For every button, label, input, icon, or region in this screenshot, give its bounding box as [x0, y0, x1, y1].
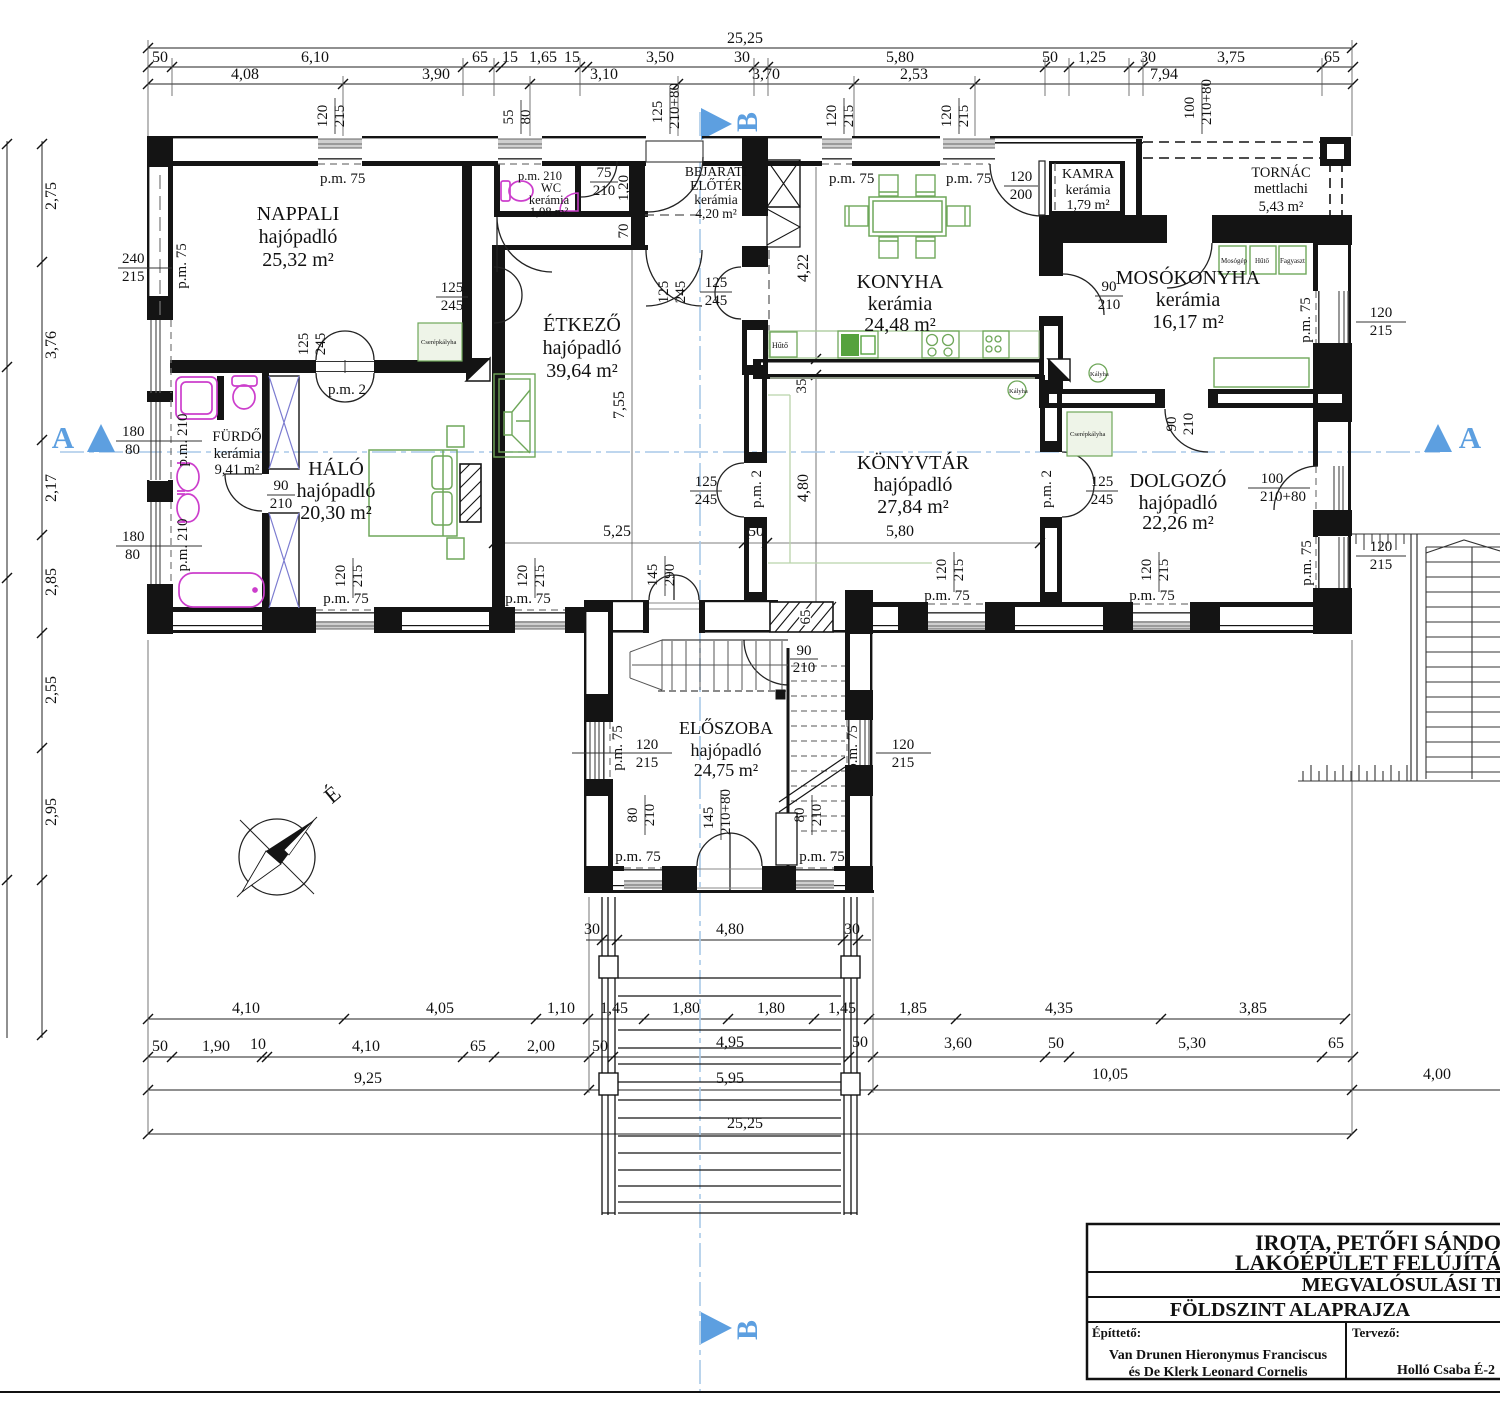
- svg-text:hajópadló: hajópadló: [259, 226, 338, 248]
- svg-text:5,95: 5,95: [716, 1070, 744, 1087]
- svg-text:1,10: 1,10: [547, 1000, 575, 1017]
- svg-text:p.m. 75: p.m. 75: [924, 588, 969, 604]
- svg-text:125: 125: [705, 275, 728, 291]
- svg-text:120: 120: [939, 105, 955, 128]
- svg-text:1,90: 1,90: [202, 1038, 230, 1055]
- svg-text:NAPPALI: NAPPALI: [257, 203, 340, 225]
- svg-text:125: 125: [1091, 474, 1114, 490]
- svg-text:120: 120: [824, 105, 840, 128]
- svg-text:1,20: 1,20: [616, 175, 632, 201]
- svg-text:215: 215: [122, 269, 145, 285]
- svg-text:Kályha: Kályha: [1009, 388, 1028, 395]
- svg-text:90: 90: [797, 643, 812, 659]
- svg-text:1,45: 1,45: [828, 1000, 856, 1017]
- svg-text:15: 15: [564, 49, 580, 66]
- svg-text:50: 50: [852, 1034, 868, 1051]
- svg-text:215: 215: [350, 565, 366, 588]
- svg-text:245: 245: [441, 298, 464, 314]
- svg-text:65: 65: [472, 49, 488, 66]
- svg-text:Hűtő: Hűtő: [772, 341, 788, 350]
- svg-text:70: 70: [616, 224, 632, 239]
- svg-text:2,00: 2,00: [527, 1038, 555, 1055]
- svg-text:ELŐTÉR: ELŐTÉR: [690, 178, 742, 193]
- svg-text:1,98 m²: 1,98 m²: [530, 205, 569, 219]
- svg-text:2,53: 2,53: [900, 66, 928, 83]
- svg-text:90: 90: [274, 478, 289, 494]
- svg-text:245: 245: [1091, 492, 1114, 508]
- svg-text:p.m. 2: p.m. 2: [328, 382, 366, 398]
- svg-text:2,85: 2,85: [43, 568, 60, 596]
- svg-text:210: 210: [1181, 413, 1197, 436]
- svg-text:3,50: 3,50: [646, 49, 674, 66]
- svg-text:Van Drunen Hieronymus Francisc: Van Drunen Hieronymus Franciscus: [1109, 1348, 1328, 1363]
- svg-text:210+80: 210+80: [1199, 79, 1215, 125]
- svg-text:1,85: 1,85: [899, 1000, 927, 1017]
- svg-text:180: 180: [122, 424, 145, 440]
- svg-text:120: 120: [515, 565, 531, 588]
- svg-text:A: A: [52, 420, 75, 455]
- svg-text:hajópadló: hajópadló: [1139, 492, 1218, 514]
- svg-text:Cserépkályha: Cserépkályha: [421, 339, 456, 346]
- svg-text:5,30: 5,30: [1178, 1035, 1206, 1052]
- svg-text:3,10: 3,10: [590, 66, 618, 83]
- svg-text:39,64 m²: 39,64 m²: [546, 360, 618, 382]
- svg-text:2,75: 2,75: [43, 182, 60, 210]
- svg-text:9,25: 9,25: [354, 1070, 382, 1087]
- svg-text:6,10: 6,10: [301, 49, 329, 66]
- svg-text:hajópadló: hajópadló: [691, 740, 762, 760]
- svg-text:9,41 m²: 9,41 m²: [215, 462, 260, 478]
- svg-text:210: 210: [793, 660, 816, 676]
- svg-text:30: 30: [584, 921, 600, 938]
- svg-text:16,17 m²: 16,17 m²: [1152, 311, 1224, 333]
- svg-text:2,17: 2,17: [43, 474, 60, 502]
- svg-text:80: 80: [625, 808, 641, 823]
- svg-text:80: 80: [518, 110, 534, 125]
- svg-text:120: 120: [1370, 539, 1393, 555]
- svg-text:3,90: 3,90: [422, 66, 450, 83]
- svg-text:4,35: 4,35: [1045, 1000, 1073, 1017]
- svg-text:és De Klerk Leonard Cornelis: és De Klerk Leonard Cornelis: [1129, 1365, 1308, 1380]
- svg-text:145: 145: [645, 564, 661, 587]
- svg-text:215: 215: [1370, 323, 1393, 339]
- svg-text:mettlachi: mettlachi: [1254, 181, 1308, 197]
- svg-text:p.m. 75: p.m. 75: [610, 725, 626, 770]
- svg-text:27,84 m²: 27,84 m²: [877, 496, 949, 518]
- svg-text:4,10: 4,10: [352, 1038, 380, 1055]
- svg-text:4,08: 4,08: [231, 66, 259, 83]
- svg-text:1,45: 1,45: [600, 1000, 628, 1017]
- svg-text:120: 120: [1370, 305, 1393, 321]
- svg-text:30: 30: [734, 49, 750, 66]
- svg-text:5,80: 5,80: [886, 49, 914, 66]
- svg-text:Kályha: Kályha: [1090, 371, 1109, 378]
- svg-text:215: 215: [956, 105, 972, 128]
- svg-text:125: 125: [296, 333, 312, 356]
- svg-text:p.m. 75: p.m. 75: [323, 591, 368, 607]
- svg-text:KONYHA: KONYHA: [857, 271, 944, 293]
- svg-text:210: 210: [809, 804, 825, 827]
- svg-text:120: 120: [892, 737, 915, 753]
- svg-text:120: 120: [315, 105, 331, 128]
- svg-text:1,79 m²: 1,79 m²: [1066, 198, 1109, 213]
- svg-text:p.m. 2: p.m. 2: [749, 470, 765, 508]
- svg-text:p.m. 75: p.m. 75: [829, 171, 874, 187]
- svg-text:215: 215: [332, 105, 348, 128]
- svg-text:25,32 m²: 25,32 m²: [262, 249, 334, 271]
- svg-text:5,43 m²: 5,43 m²: [1259, 199, 1304, 215]
- svg-text:p.m. 2: p.m. 2: [1039, 470, 1055, 508]
- svg-text:MOSÓKONYHA: MOSÓKONYHA: [1116, 265, 1261, 289]
- svg-text:10,05: 10,05: [1092, 1066, 1128, 1083]
- svg-text:4,80: 4,80: [716, 921, 744, 938]
- svg-text:65: 65: [1324, 49, 1340, 66]
- svg-text:50: 50: [152, 49, 168, 66]
- svg-text:kerámia: kerámia: [214, 446, 261, 462]
- svg-text:p.m. 75: p.m. 75: [505, 591, 550, 607]
- svg-text:290: 290: [662, 564, 678, 587]
- svg-text:LAKÓÉPÜLET FELÚJÍTÁSA ÉS: LAKÓÉPÜLET FELÚJÍTÁSA ÉS: [1235, 1250, 1500, 1275]
- svg-text:120: 120: [636, 737, 659, 753]
- svg-text:KÖNYVTÁR: KÖNYVTÁR: [857, 451, 970, 474]
- svg-text:FÜRDŐ: FÜRDŐ: [212, 428, 261, 445]
- svg-text:210: 210: [593, 183, 616, 199]
- svg-text:hajópadló: hajópadló: [874, 474, 953, 496]
- svg-text:2,95: 2,95: [43, 798, 60, 826]
- svg-text:3,85: 3,85: [1239, 1000, 1267, 1017]
- svg-text:3,60: 3,60: [944, 1035, 972, 1052]
- svg-text:ÉTKEZŐ: ÉTKEZŐ: [543, 312, 621, 336]
- svg-text:Tervező:: Tervező:: [1352, 1325, 1400, 1340]
- svg-text:Mosógép: Mosógép: [1221, 257, 1248, 265]
- svg-text:4,00: 4,00: [1423, 1066, 1451, 1083]
- svg-text:4,10: 4,10: [232, 1000, 260, 1017]
- svg-text:80: 80: [125, 547, 140, 563]
- svg-text:1,80: 1,80: [757, 1000, 785, 1017]
- svg-text:4,22: 4,22: [795, 254, 812, 282]
- svg-text:50: 50: [592, 1038, 608, 1055]
- svg-text:B: B: [731, 112, 764, 132]
- svg-text:240: 240: [122, 251, 145, 267]
- svg-text:90: 90: [1102, 279, 1117, 295]
- svg-text:p.m. 75: p.m. 75: [1129, 588, 1174, 604]
- svg-text:75: 75: [597, 165, 612, 181]
- svg-text:210: 210: [642, 804, 658, 827]
- svg-text:245: 245: [695, 492, 718, 508]
- svg-text:120: 120: [1139, 559, 1155, 582]
- svg-text:kerámia: kerámia: [694, 192, 737, 207]
- svg-text:Építtető:: Építtető:: [1092, 1325, 1141, 1340]
- svg-text:hajópadló: hajópadló: [543, 337, 622, 359]
- svg-text:80: 80: [125, 442, 140, 458]
- svg-text:3,75: 3,75: [1217, 49, 1245, 66]
- svg-text:55: 55: [501, 110, 517, 125]
- svg-text:215: 215: [532, 565, 548, 588]
- svg-text:30: 30: [1140, 49, 1156, 66]
- svg-text:1,25: 1,25: [1078, 49, 1106, 66]
- svg-text:4,80: 4,80: [795, 474, 812, 502]
- svg-text:3,76: 3,76: [43, 331, 60, 359]
- svg-text:1,65: 1,65: [529, 49, 557, 66]
- svg-text:Cserépkályha: Cserépkályha: [1070, 431, 1105, 438]
- svg-text:125: 125: [650, 101, 666, 124]
- svg-text:p.m. 75: p.m. 75: [1298, 297, 1314, 342]
- svg-text:p.m. 210: p.m. 210: [175, 519, 191, 572]
- svg-text:DOLGOZÓ: DOLGOZÓ: [1130, 468, 1227, 492]
- svg-text:90: 90: [1164, 417, 1180, 432]
- svg-text:210+80: 210+80: [667, 83, 683, 129]
- svg-text:210: 210: [1098, 297, 1121, 313]
- svg-text:kerámia: kerámia: [868, 293, 933, 315]
- svg-text:215: 215: [636, 755, 659, 771]
- svg-text:Holló Csaba É-2: Holló Csaba É-2: [1397, 1361, 1495, 1378]
- svg-text:HÁLÓ: HÁLÓ: [308, 456, 364, 480]
- svg-text:215: 215: [1370, 557, 1393, 573]
- svg-text:180: 180: [122, 529, 145, 545]
- svg-text:2,55: 2,55: [43, 676, 60, 704]
- svg-text:120: 120: [1010, 169, 1033, 185]
- svg-text:35: 35: [794, 379, 810, 394]
- svg-text:210+80: 210+80: [1260, 489, 1306, 505]
- svg-text:1,80: 1,80: [672, 1000, 700, 1017]
- svg-text:215: 215: [951, 559, 967, 582]
- svg-text:5,80: 5,80: [886, 523, 914, 540]
- svg-text:Hűtő: Hűtő: [1255, 257, 1270, 265]
- svg-text:50: 50: [1042, 49, 1058, 66]
- svg-text:4,20 m²: 4,20 m²: [695, 206, 737, 221]
- svg-text:210: 210: [270, 496, 293, 512]
- svg-text:BEJARATI: BEJARATI: [685, 164, 748, 179]
- svg-text:65: 65: [798, 610, 814, 625]
- svg-text:50: 50: [1048, 1035, 1064, 1052]
- svg-text:20,30 m²: 20,30 m²: [300, 502, 372, 524]
- svg-text:p.m. 75: p.m. 75: [845, 725, 861, 770]
- svg-text:p.m. 75: p.m. 75: [946, 171, 991, 187]
- svg-text:120: 120: [333, 565, 349, 588]
- svg-text:Fagyaszt: Fagyaszt: [1280, 257, 1305, 265]
- svg-text:245: 245: [705, 293, 728, 309]
- svg-text:215: 215: [1156, 559, 1172, 582]
- svg-text:200: 200: [1010, 187, 1033, 203]
- svg-text:kerámia: kerámia: [1156, 289, 1221, 311]
- svg-text:p.m. 75: p.m. 75: [799, 849, 844, 865]
- svg-text:10: 10: [250, 1036, 266, 1053]
- svg-text:4,05: 4,05: [426, 1000, 454, 1017]
- svg-text:25,25: 25,25: [727, 30, 763, 47]
- svg-text:215: 215: [892, 755, 915, 771]
- svg-text:120: 120: [934, 559, 950, 582]
- svg-text:100: 100: [1182, 97, 1198, 120]
- svg-text:MEGVALÓSULÁSI TE: MEGVALÓSULÁSI TE: [1302, 1272, 1500, 1296]
- svg-text:65: 65: [1328, 1035, 1344, 1052]
- svg-text:7,55: 7,55: [611, 391, 628, 419]
- svg-text:B: B: [731, 1320, 764, 1340]
- svg-text:80: 80: [792, 808, 808, 823]
- svg-text:p.m. 75: p.m. 75: [174, 243, 190, 288]
- svg-text:65: 65: [470, 1038, 486, 1055]
- svg-text:hajópadló: hajópadló: [297, 480, 376, 502]
- svg-text:ELŐSZOBA: ELŐSZOBA: [679, 717, 773, 738]
- svg-text:p.m. 210: p.m. 210: [175, 414, 191, 467]
- svg-text:50: 50: [152, 1038, 168, 1055]
- svg-text:3,70: 3,70: [752, 66, 780, 83]
- svg-text:TORNÁC: TORNÁC: [1251, 164, 1310, 181]
- svg-text:p.m. 75: p.m. 75: [1299, 540, 1315, 585]
- svg-text:15: 15: [502, 49, 518, 66]
- svg-text:215: 215: [841, 105, 857, 128]
- svg-text:245: 245: [673, 281, 689, 304]
- svg-text:125: 125: [656, 281, 672, 304]
- svg-text:100: 100: [1261, 471, 1284, 487]
- svg-text:kerámia: kerámia: [1065, 183, 1111, 198]
- svg-text:145: 145: [701, 807, 717, 830]
- svg-text:FÖLDSZINT ALAPRAJZA: FÖLDSZINT ALAPRAJZA: [1170, 1298, 1411, 1321]
- svg-text:KAMRA: KAMRA: [1062, 167, 1115, 182]
- svg-text:5,25: 5,25: [603, 523, 631, 540]
- svg-text:24,75 m²: 24,75 m²: [694, 760, 758, 780]
- svg-text:125: 125: [441, 280, 464, 296]
- svg-text:p.m. 75: p.m. 75: [320, 171, 365, 187]
- svg-text:210+80: 210+80: [718, 789, 734, 835]
- svg-text:245: 245: [313, 333, 329, 356]
- svg-text:22,26 m²: 22,26 m²: [1142, 512, 1214, 534]
- svg-text:7,94: 7,94: [1150, 66, 1178, 83]
- svg-text:125: 125: [695, 474, 718, 490]
- svg-text:24,48 m²: 24,48 m²: [864, 314, 936, 336]
- svg-text:A: A: [1459, 420, 1482, 455]
- svg-text:p.m. 75: p.m. 75: [615, 849, 660, 865]
